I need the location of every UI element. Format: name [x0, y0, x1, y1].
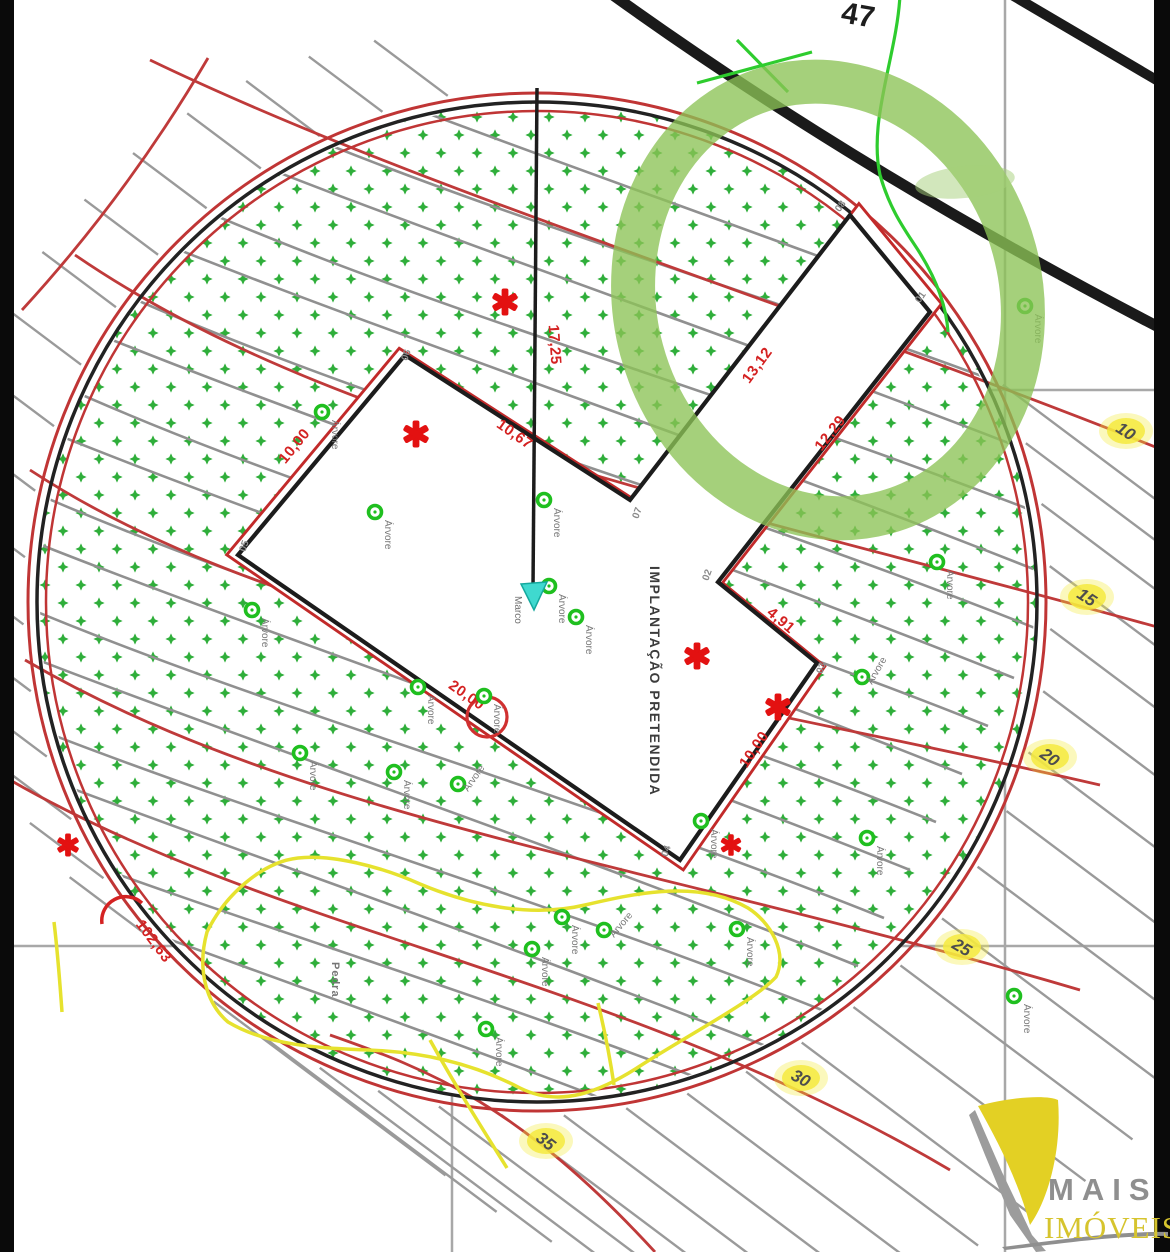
tree-icon	[480, 1023, 493, 1036]
tree-icon	[556, 911, 569, 924]
tree-icon	[388, 766, 401, 779]
tree-icon	[931, 556, 944, 569]
building-title: IMPLANTAÇÃO PRETENDIDA	[647, 566, 664, 796]
tree-label: Árvore	[329, 420, 342, 450]
elevation-badge: 30	[774, 1060, 828, 1096]
tree-label: Árvore	[744, 937, 757, 967]
site-plan-svg: 0102030405060708 17,2510,6710,0013,1212,…	[0, 0, 1170, 1252]
elevation-badge: 15	[1060, 579, 1114, 615]
tree-label: Árvore	[425, 695, 438, 725]
logo-text-imoveis: IMÓVEIS	[1044, 1210, 1170, 1245]
tree-icon	[478, 690, 491, 703]
tree-label: Árvore	[382, 520, 395, 550]
tree-label: Árvore	[874, 846, 887, 876]
tree-label: Árvore	[944, 570, 957, 600]
dimension-label: 17,25	[545, 324, 565, 365]
tree-label: Árvore	[708, 829, 721, 859]
right-black-strip	[1154, 0, 1170, 1252]
tree-icon	[538, 494, 551, 507]
tree-label: Árvore	[307, 761, 320, 791]
tree-label: Árvore	[583, 625, 596, 655]
tree-icon	[246, 604, 259, 617]
tree-icon	[316, 406, 329, 419]
elevation-badge: 25	[935, 929, 989, 965]
site-plan-page: 0102030405060708 17,2510,6710,0013,1212,…	[0, 0, 1170, 1252]
tree-icon	[294, 747, 307, 760]
tree-label: Árvore	[401, 780, 414, 810]
tree-icon	[570, 611, 583, 624]
tree-icon	[369, 506, 382, 519]
tree-label: Árvore	[1021, 1004, 1034, 1034]
tree-icon	[412, 681, 425, 694]
tree-label: Árvore	[493, 1037, 506, 1067]
tree-label: Árvore	[569, 925, 582, 955]
tree-label: Árvore	[259, 618, 272, 648]
tree-label: Árvore	[551, 508, 564, 538]
tree-label: Árvore	[539, 957, 552, 987]
rock-label: Pedra	[329, 962, 341, 998]
left-black-strip	[0, 0, 14, 1252]
elevation-badge: 35	[519, 1123, 573, 1159]
tree-icon	[695, 815, 708, 828]
tree-icon	[731, 923, 744, 936]
tree-icon	[526, 943, 539, 956]
marco-label: Marco	[512, 596, 523, 624]
tree-icon	[861, 832, 874, 845]
logo-text-mais: MAIS	[1048, 1172, 1158, 1207]
tree-label: Árvore	[491, 704, 504, 734]
elevation-badge: 20	[1023, 739, 1077, 775]
top-partial-label: 47	[839, 0, 878, 35]
tree-label: Árvore	[556, 594, 569, 624]
elevation-badge: 10	[1099, 413, 1153, 449]
tree-icon	[1008, 990, 1021, 1003]
